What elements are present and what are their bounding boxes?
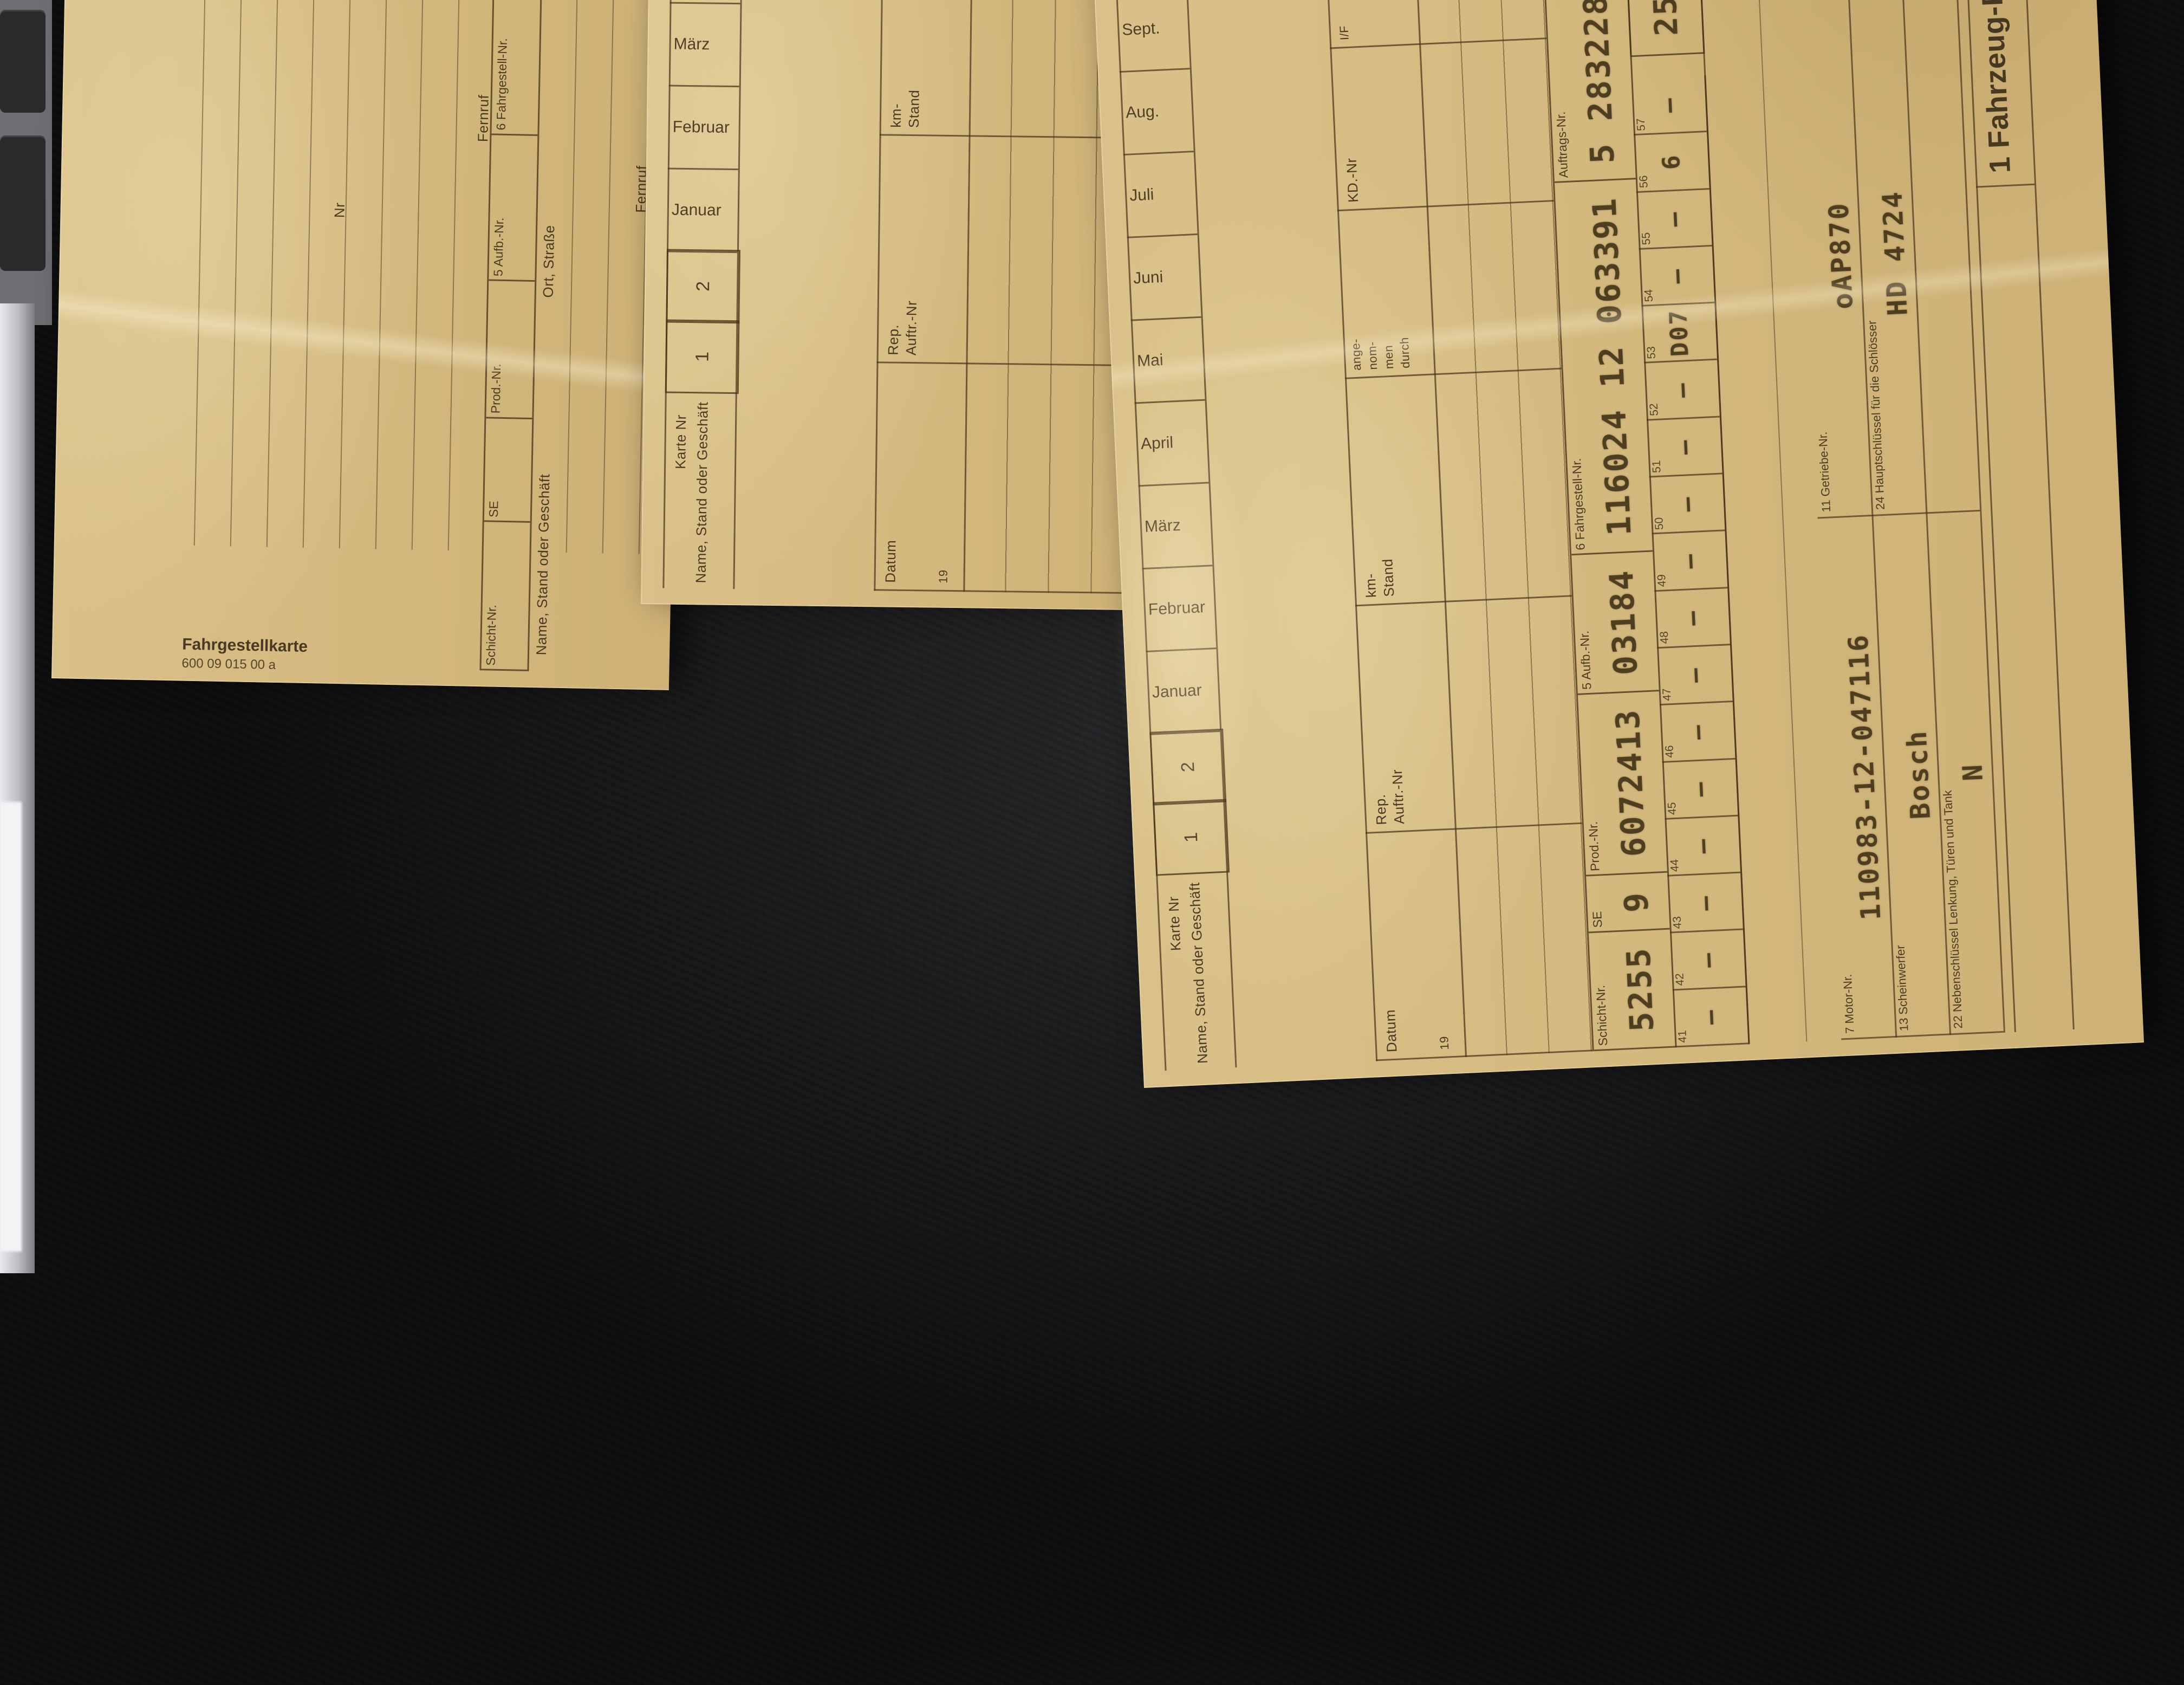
box-number: 50 [1653, 517, 1666, 530]
datum-label: Datum [1382, 1009, 1401, 1052]
durch-label: durch [1397, 337, 1413, 369]
name-stand-label: Name, Stand oder Geschäft [1186, 882, 1211, 1064]
month-label: Mai [1132, 351, 1163, 371]
month-cell: April [1135, 401, 1209, 487]
numbered-box: 54 — [1639, 247, 1715, 307]
schicht-cell-value [498, 522, 530, 670]
ort-strasse-label: Ort, Straße [540, 225, 558, 298]
box-number: 46 [1663, 745, 1676, 758]
schicht-cell-label: Prod.-Nr. [486, 281, 505, 417]
schicht-cell-value: 5255 [1605, 929, 1675, 1048]
month-cell: Mai [1131, 318, 1205, 404]
month-label: März [669, 35, 710, 54]
box-value: — [1670, 438, 1699, 456]
box-value: — [1675, 552, 1704, 569]
datum-label: Datum [882, 540, 900, 582]
rule-line [448, 0, 475, 550]
ange-label: ange- [1349, 338, 1364, 371]
box-number: 53 [1645, 346, 1659, 359]
rep-label: Rep. [885, 325, 902, 355]
rule-line [303, 0, 330, 548]
schicht-cell-value [503, 281, 535, 417]
month-cell: Sept. [1116, 0, 1190, 73]
karte-box-1: 1 [665, 320, 740, 394]
schicht-cell-value [505, 135, 537, 281]
table-border [1305, 0, 1377, 1061]
schicht-cell-value: 5 28322871 [1560, 0, 1635, 181]
karte-box-1: 1 [1153, 799, 1230, 876]
nom-label: nom- [1365, 341, 1380, 370]
month-label: Januar [667, 201, 721, 220]
rule-line [230, 0, 257, 546]
numbered-box: 49 — [1652, 532, 1728, 592]
months-row: JanuarFebruarMärzAprilMaiJuniJuliAug.Sep… [667, 0, 749, 253]
schicht-cell-label: SE [1586, 876, 1605, 931]
rule-line [602, 0, 628, 554]
kd-nr-label: KD.-Nr [1343, 158, 1362, 203]
numbered-box: 41 — [1673, 987, 1748, 1047]
schicht-cell-value: 6072413 [1595, 691, 1667, 874]
rule-line [1735, 0, 1807, 1041]
numbered-box: 44 — [1665, 816, 1741, 877]
km2-label: Stand [906, 89, 923, 128]
karte-box-2: 2 [1149, 729, 1226, 806]
month-cell: März [669, 4, 740, 88]
schicht-cell-value [508, 0, 541, 134]
box-value: 6 [1657, 153, 1686, 171]
box-number: 57 [1635, 118, 1648, 131]
km-cell-1: 258 [1626, 0, 1705, 57]
rep-label: Rep. [1372, 794, 1390, 825]
numbered-box: 53 D07 [1642, 303, 1718, 364]
box-number: 47 [1661, 688, 1674, 701]
box-value: — [1678, 609, 1706, 626]
box-value: — [1668, 381, 1696, 398]
numbered-box: 56 6 [1634, 132, 1709, 192]
month-cell: Januar [1146, 649, 1220, 735]
month-label: März [1140, 516, 1181, 536]
schicht-cell-value: 9 [1603, 873, 1669, 931]
form-name: Fahrgestellkarte [182, 636, 308, 656]
keyboard-key [0, 10, 45, 113]
rule-line [566, 0, 591, 553]
numbered-box: 47 — [1657, 645, 1733, 705]
men-label: men [1381, 345, 1396, 369]
fahrzeug-daten-title: 1 Fahrzeug-Daten [1972, 0, 2017, 174]
schicht-cell-value [501, 418, 532, 521]
box-value: — [1691, 894, 1719, 911]
card-service-empty: Karte Nr 1 2 JanuarFebruarMärzAprilMaiJu… [641, 68, 1177, 1666]
box-number: 44 [1668, 859, 1682, 872]
box-number: 45 [1666, 802, 1679, 815]
month-label: Sept. [1117, 20, 1161, 40]
laptop-edge-highlight [0, 802, 22, 1252]
box-value: — [1673, 495, 1701, 513]
box-value: — [1681, 666, 1709, 683]
box-value: — [1696, 1008, 1724, 1025]
numbered-box: 55 — [1636, 189, 1712, 249]
if-label: I/F [1337, 25, 1351, 40]
keyboard-key [0, 135, 45, 271]
col-line [1976, 184, 2034, 188]
box-value: — [1655, 96, 1683, 113]
month-label: Aug. [1121, 102, 1160, 122]
rule-line [412, 0, 439, 550]
schicht-cell-label: Schicht-Nr. [481, 522, 500, 669]
month-label: Februar [1143, 598, 1205, 619]
month-label: Februar [668, 118, 730, 137]
month-cell: Januar [667, 170, 738, 254]
box-value: — [1662, 267, 1691, 284]
schicht-cell-label: 5 Aufb.-Nr. [489, 135, 508, 280]
datum-19: 19 [1437, 1036, 1452, 1051]
numbered-box: 45 — [1662, 759, 1738, 819]
month-cell: Februar [668, 87, 739, 171]
month-cell: Juni [1127, 235, 1201, 321]
box-number: 43 [1671, 916, 1685, 929]
month-cell: Juli [1123, 152, 1198, 238]
rule-line [194, 0, 215, 546]
numbered-box: 52 — [1644, 360, 1720, 420]
form-number: 600 09 015 00 a [181, 656, 276, 673]
month-label: Juni [1128, 268, 1163, 288]
box-value: D07 [1665, 308, 1694, 358]
month-label: Januar [1147, 681, 1202, 702]
numbered-box: 50 — [1649, 474, 1725, 534]
box-number: 51 [1650, 460, 1663, 473]
km-label: km- [888, 103, 905, 128]
numbered-box: 46 — [1660, 702, 1735, 762]
rep2-label: Auftr.-Nr [1389, 769, 1408, 825]
rule-line [375, 0, 402, 549]
nr-label: Nr [331, 202, 348, 218]
numbered-box: 51 — [1647, 417, 1722, 477]
month-label: April [1136, 433, 1173, 453]
numbered-box: 48 — [1654, 588, 1730, 649]
card-service-filled: Karte Nr 1 2 JanuarFebruarMärzAprilMaiJu… [1144, 87, 2145, 1685]
box-value: — [1660, 210, 1688, 228]
box-value: — [1683, 723, 1712, 740]
km-label: km- [1362, 573, 1380, 598]
box-number: 54 [1642, 289, 1656, 302]
paper-crease [58, 288, 675, 398]
box-number: 48 [1658, 631, 1672, 644]
schicht-cell-label: SE [484, 418, 503, 521]
name-stand-label: Name, Stand oder Geschäft [692, 401, 711, 583]
karte-nr-label: Karte Nr [1165, 896, 1185, 951]
box-value: — [1688, 837, 1717, 854]
box-number: 55 [1640, 232, 1653, 245]
numbered-box: 57 — [1631, 75, 1707, 135]
box-value: — [1686, 780, 1714, 798]
month-cell: Aug. [1120, 69, 1194, 155]
box-number: 56 [1637, 175, 1651, 188]
card-fahrgestellkarte: 600 09 015 00 a Fahrgestellkarte Fahrges… [51, 61, 669, 1664]
rule-line [266, 0, 294, 547]
photo-scene: 600 09 015 00 a Fahrgestellkarte Fahrges… [0, 0, 2184, 1638]
numbered-box: 43 — [1667, 873, 1743, 934]
schicht-cell-value: 03184 [1588, 552, 1659, 693]
numbered-box: 42 — [1670, 930, 1746, 990]
table-border [874, 0, 894, 591]
box-number: 42 [1673, 973, 1687, 986]
box-value: — [1694, 951, 1722, 968]
rep2-label: Auftr.-Nr [903, 301, 920, 356]
month-cell: März [1139, 483, 1213, 569]
box-number: 41 [1676, 1030, 1689, 1043]
month-label: Juli [1125, 185, 1155, 205]
datum-19: 19 [937, 569, 951, 584]
box-number: 49 [1655, 574, 1669, 587]
karte-box-2: 2 [666, 249, 740, 324]
karte-nr-label: Karte Nr [672, 414, 690, 469]
km2-label: Stand [1379, 558, 1397, 597]
box-number: 52 [1648, 403, 1661, 416]
name-stand-label: Name, Stand oder Geschäft [533, 474, 553, 655]
month-cell: Februar [1142, 566, 1217, 652]
rule-line [339, 0, 366, 548]
